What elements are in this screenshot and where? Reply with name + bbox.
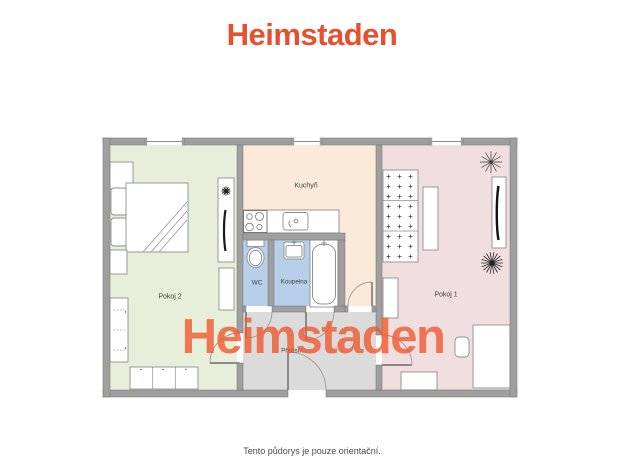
wall-passage-stub xyxy=(345,306,348,312)
wall-bath-bottom xyxy=(243,306,246,312)
stove xyxy=(244,211,268,233)
wall-right xyxy=(510,138,517,397)
room-predsin-floor xyxy=(243,312,376,390)
side-table xyxy=(423,187,438,250)
wall-top xyxy=(463,138,517,145)
cabinet xyxy=(219,268,234,310)
wall-koupelna-right xyxy=(338,240,345,306)
room-label-pokoj1: Pokoj 1 xyxy=(434,292,457,299)
room-kuchyn-passage-floor xyxy=(345,233,376,306)
toilet-tank xyxy=(247,240,264,247)
handle xyxy=(125,347,126,348)
room-label-pokoj2: Pokoj 2 xyxy=(158,294,181,301)
window-kuchyn xyxy=(292,138,322,146)
chair xyxy=(455,337,469,357)
room-label-koupelna: Koupelna xyxy=(281,279,308,286)
desk xyxy=(473,325,510,388)
plant-icon-center xyxy=(225,190,227,192)
wall-bottom xyxy=(326,390,517,397)
bathtub xyxy=(310,240,338,307)
wall-top xyxy=(322,138,430,145)
plant-icon-center xyxy=(490,261,495,266)
handle xyxy=(162,369,163,370)
wardrobe xyxy=(383,278,398,318)
disclaimer-text: Tento půdorys je pouze orientační. xyxy=(0,446,624,456)
wall-wc-koupelna xyxy=(268,240,274,306)
room-label-predsin: Předsíň xyxy=(281,348,303,355)
window-pokoj1 xyxy=(430,138,463,146)
wall-pokoj2 xyxy=(237,363,243,390)
sofa-cushion-texture xyxy=(385,173,416,259)
handle xyxy=(125,311,126,312)
wall-bottom xyxy=(103,390,288,397)
wall-left xyxy=(103,138,110,397)
kitchen-sink xyxy=(283,213,308,231)
pillow xyxy=(111,218,127,246)
double-bed xyxy=(126,183,188,252)
wall-passage-stub xyxy=(372,306,376,312)
wall-pokoj1 xyxy=(376,365,382,390)
handle xyxy=(140,369,141,370)
small-table xyxy=(401,372,437,390)
pillow xyxy=(111,188,127,215)
room-label-kuchyn: Kuchyň xyxy=(294,183,317,190)
wall-pokoj1 xyxy=(376,145,382,335)
cabinet xyxy=(110,250,127,274)
sideboard xyxy=(130,367,198,389)
window-pokoj2 xyxy=(145,138,184,146)
wall-pokoj2 xyxy=(237,145,243,333)
wall-bath-bottom xyxy=(272,306,306,312)
room-label-wc: WC xyxy=(252,280,263,287)
wall-bath-bottom xyxy=(334,306,345,312)
wall-top xyxy=(184,138,292,145)
handle xyxy=(185,369,186,370)
floorplan-page: Heimstaden xyxy=(0,0,624,468)
floorplan-drawing: Kuchyň Pokoj 2 Pokoj 1 WC Koupelna Předs… xyxy=(0,0,624,468)
wall-kitchen-bath xyxy=(243,233,345,240)
kuchyn-furniture xyxy=(243,210,339,233)
